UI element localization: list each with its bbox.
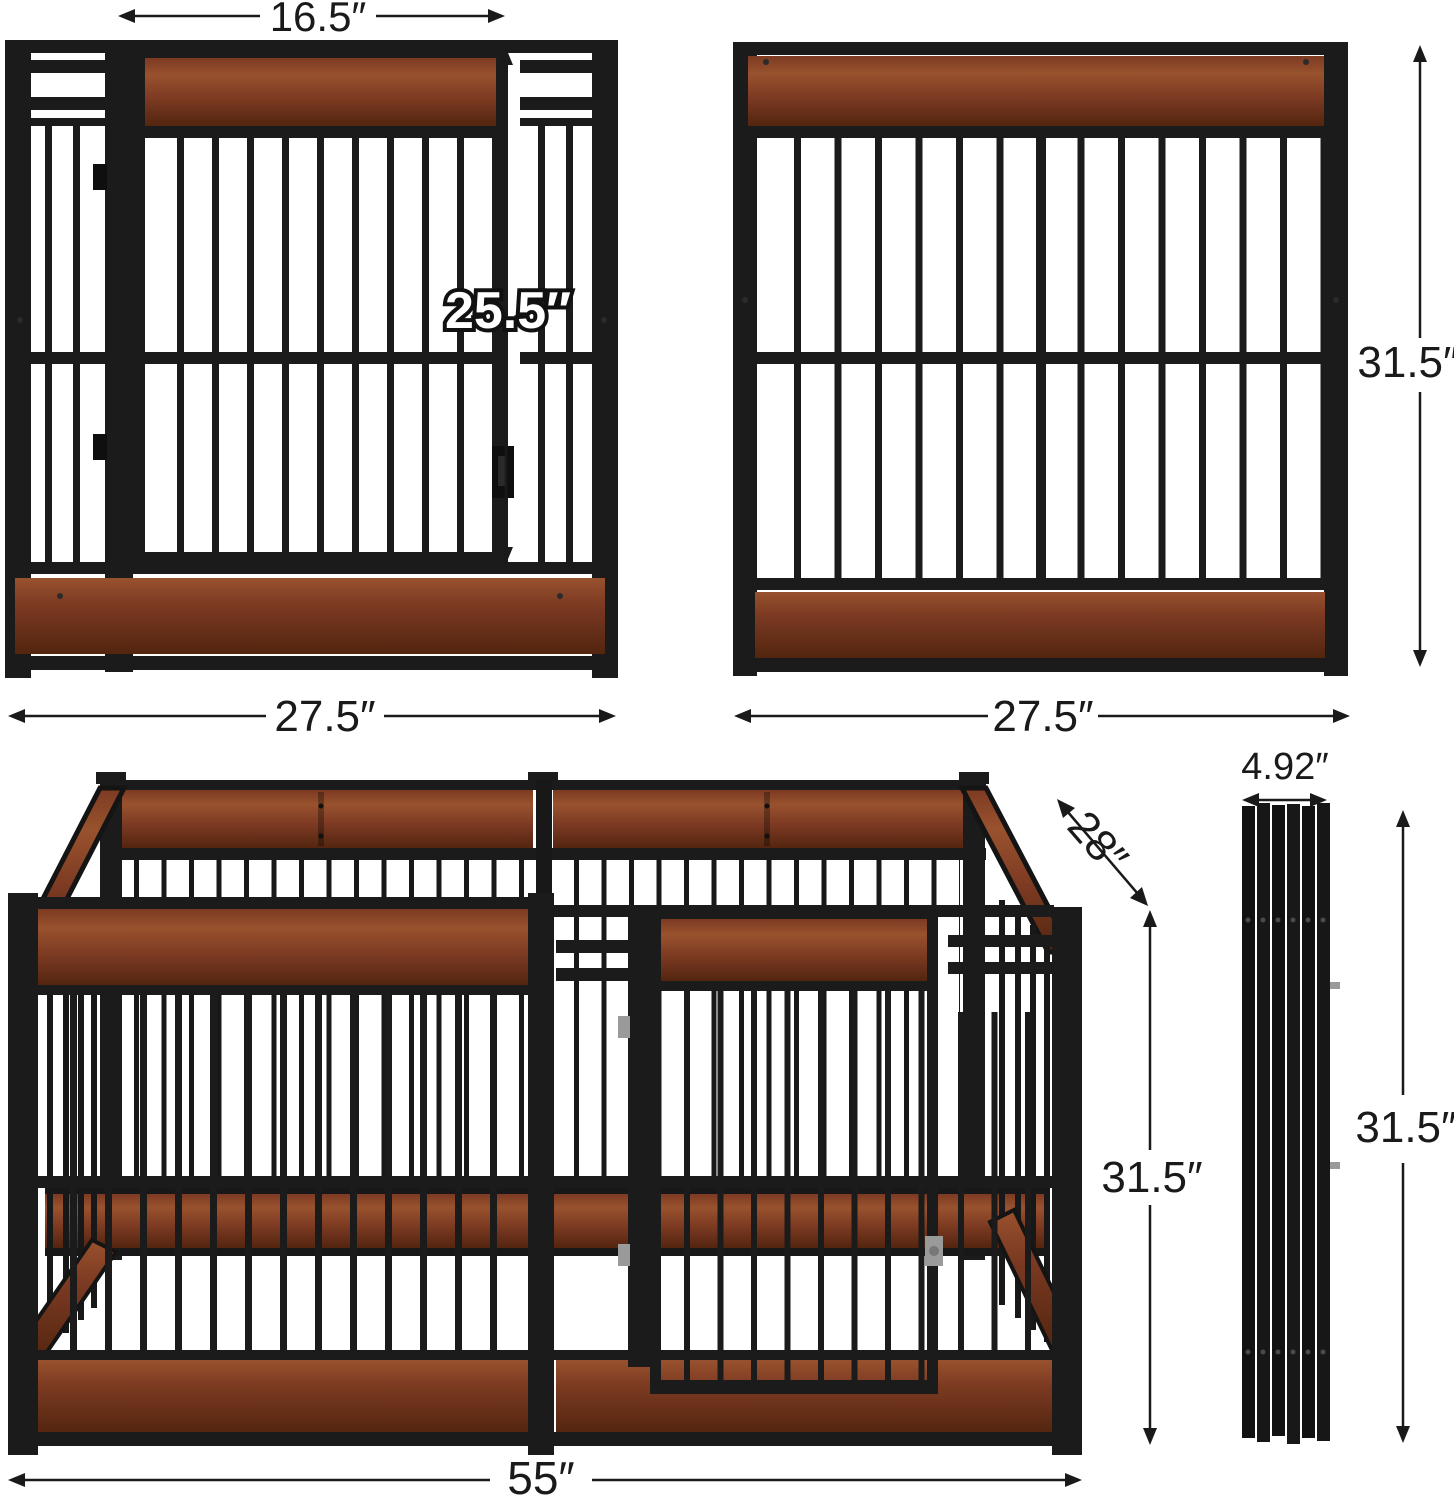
pen-front-bottom-wood-left <box>20 1360 532 1434</box>
folded-pin-top <box>1330 982 1340 989</box>
pen-height-label: 31.5″ <box>1101 1153 1202 1202</box>
pen-front-center-post <box>528 893 554 1447</box>
side-panel-top-wood <box>748 56 1324 126</box>
door-width-label: 16.5″ <box>270 0 367 40</box>
pen-door-hinge-bottom <box>618 1244 630 1266</box>
panel-bottom-frame <box>5 656 618 670</box>
side-panel-width-label: 27.5″ <box>992 692 1093 741</box>
panel-left-post <box>5 40 31 672</box>
diagram-svg: 16.5″ 25.5″ 27.5″ 27.5″ 31.5″ <box>0 0 1454 1500</box>
panel-lower-rail <box>5 562 618 574</box>
pen-front-left-post <box>8 893 38 1447</box>
pen-door-hinge-top <box>618 1016 630 1038</box>
side-panel-height-label: 31.5″ <box>1357 338 1454 387</box>
door-wood-plank <box>145 58 496 126</box>
front-panel-width-label: 27.5″ <box>274 692 375 741</box>
door-hinge-top <box>93 164 107 190</box>
door-hinge-bottom <box>93 434 107 460</box>
pen-door-hinge-post <box>628 905 650 1367</box>
pen-door <box>650 907 943 1394</box>
folded-height-label: 31.5″ <box>1355 1103 1454 1152</box>
assembled-pen-figure <box>8 772 1082 1455</box>
folded-thickness-label: 4.92″ <box>1241 746 1328 788</box>
side-panel-bottom-wood <box>755 592 1325 658</box>
pen-front-left-panel <box>36 897 530 1355</box>
door-bars <box>151 138 496 552</box>
door-hinge-post <box>105 40 133 672</box>
panel-bottom-wood <box>15 578 605 654</box>
door-height-label: 25.5″ <box>445 282 571 340</box>
dimension-diagram: 16.5″ 25.5″ 27.5″ 27.5″ 31.5″ <box>0 0 1454 1500</box>
panel-right-post <box>592 40 618 672</box>
pen-front-right-post <box>1052 907 1082 1447</box>
side-panel-figure <box>733 42 1348 676</box>
folded-pin-bottom <box>1330 1162 1340 1169</box>
pen-width-label: 55″ <box>507 1452 574 1500</box>
